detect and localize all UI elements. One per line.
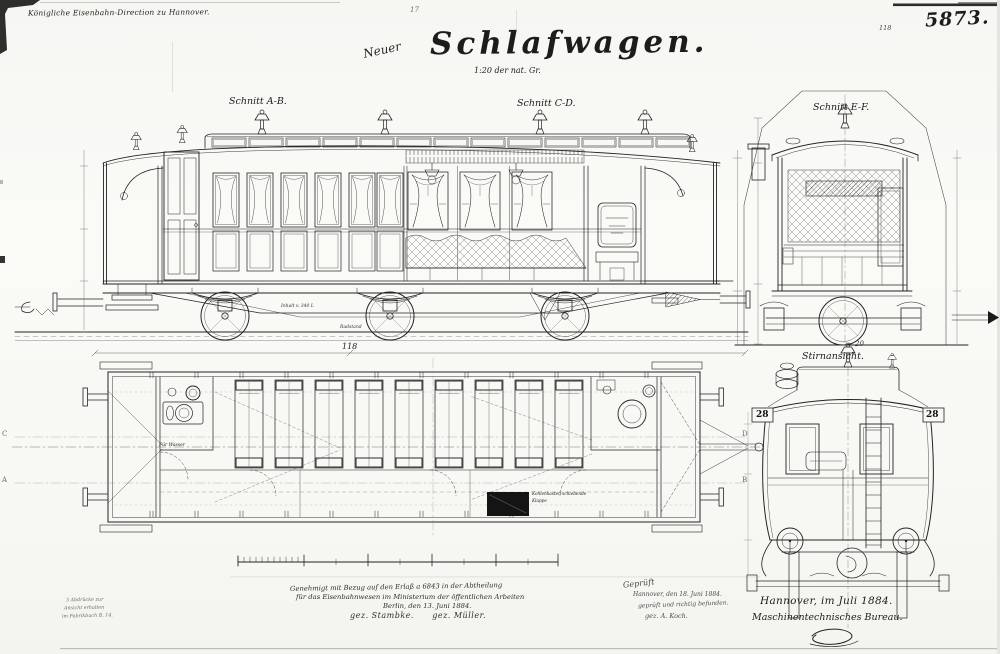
technical-drawing-linework [0, 0, 1000, 654]
drawing-sheet: Königliche Eisenbahn-Direction zu Hannov… [0, 0, 1000, 654]
cross-section-ef-view [733, 91, 999, 345]
end-view-number: 20 [855, 341, 864, 348]
title-scale: 1:20 der nat. Gr. [474, 67, 541, 75]
signature-flourish [810, 629, 858, 646]
plan-marker-c: C [2, 431, 7, 438]
direction-note: Königliche Eisenbahn-Direction zu Hannov… [28, 8, 210, 17]
section-ef-label: Schnitt E-F. [813, 103, 869, 113]
plan-marker-a: A [2, 477, 7, 484]
coal-flap-label-2: Klappe [532, 499, 547, 503]
margin-note-1: 3 Abdrücke zur [66, 599, 104, 604]
elevation-length-dim: 118 [342, 343, 357, 351]
sheet-number: 5873. [925, 8, 990, 30]
section-ab-label: Schnitt A-B. [229, 97, 287, 107]
approval-signatures: gez. Stambke. gez. Müller. [350, 612, 486, 620]
inspection-line-2: Hannover, den 18. Juni 1884. [633, 592, 722, 598]
inspection-line-4: gez. A. Koch. [645, 613, 688, 620]
issuance-bureau: Maschinentechnisches Bureau. [752, 613, 903, 623]
sheet-number-small: 118 [879, 25, 891, 32]
page-title: Schlafwagen. [430, 27, 709, 60]
water-label: Für Wasser [159, 444, 185, 449]
approval-line-3: Berlin, den 13. Juni 1884. [383, 603, 471, 610]
coal-flap-label-1: Kohlenkasten-schiebende [532, 492, 586, 496]
end-view-label: Stirnansicht. [802, 352, 864, 362]
floor-plan-view [12, 358, 763, 536]
scan-artifacts [0, 0, 1000, 654]
car-number-plate-left: 28 [756, 411, 769, 420]
plan-marker-d: D [742, 431, 748, 438]
issuance-place-date: Hannover, im Juli 1884. [760, 596, 893, 607]
side-elevation-view [15, 110, 762, 356]
car-number-plate-right: 28 [926, 411, 939, 420]
section-cd-label: Schnitt C-D. [517, 99, 576, 109]
tank-capacity-label: Inhalt v. 340 L [281, 305, 314, 310]
approval-line-2: für das Eisenbahnwesen im Ministerium de… [296, 594, 524, 601]
corner-mark: 17 [410, 7, 419, 14]
end-elevation-view [744, 343, 949, 628]
plan-marker-b: B [742, 477, 747, 484]
wheelbase-label: Radstand [340, 326, 362, 331]
margin-note-2: Ansicht erhalten [64, 607, 104, 612]
scale-bar [238, 554, 558, 566]
